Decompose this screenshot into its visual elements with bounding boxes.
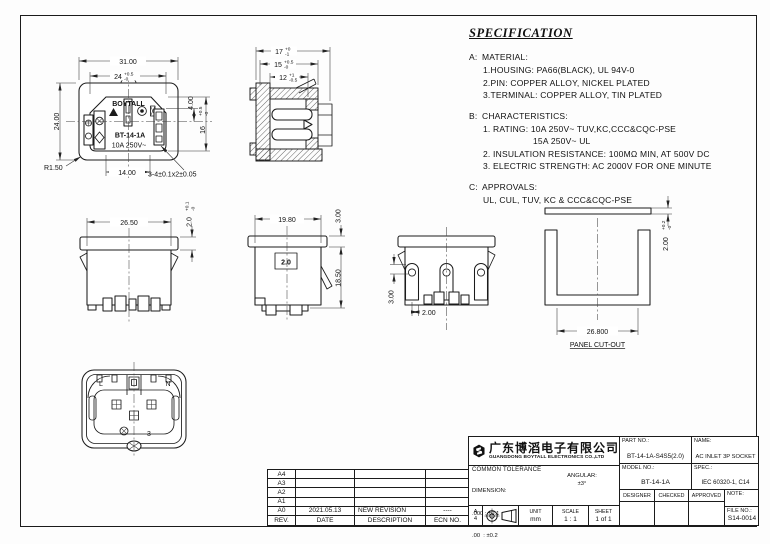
rev-cell: A2	[268, 488, 296, 497]
svg-text:18.50: 18.50	[336, 269, 343, 287]
dim-26-800: 26.800	[557, 308, 638, 336]
title-block: 广东博滔电子有限公司 GUANGDONG BOYTALL ELECTRONICS…	[468, 436, 759, 526]
tolerance-row: .00 : ±0.2	[472, 533, 552, 541]
rev-ecn: ----	[426, 507, 469, 516]
rev-cell	[355, 488, 426, 497]
svg-text:+0.1: +0.1	[185, 201, 191, 211]
angular-label: ANGULAR:	[552, 473, 612, 481]
paper-size: A 4	[469, 506, 483, 525]
terminal-block	[318, 104, 332, 146]
section-center-pin	[304, 120, 312, 129]
file-no-cell: FILE NO.: S14-0014	[725, 507, 759, 525]
rear-face-view: L N 3	[82, 362, 186, 458]
rev-cell	[355, 479, 426, 488]
rev-header: ECN NO.	[426, 516, 469, 525]
note-cell: NOTE:	[725, 490, 759, 507]
unit-value: mm	[530, 516, 541, 523]
dimension-label: DIMENSION:	[472, 488, 552, 496]
rev-cell	[426, 498, 469, 507]
third-angle-projection-icon	[484, 507, 518, 525]
side-view: 2.0 19.80 3.00 18.50	[248, 209, 345, 322]
svg-text:24.00: 24.00	[54, 113, 61, 131]
svg-text:2.00: 2.00	[422, 310, 436, 317]
svg-text:31.00: 31.00	[119, 59, 137, 66]
svg-text:4.00: 4.00	[188, 96, 195, 110]
scale-value: 1 : 1	[564, 516, 577, 523]
svg-text:3-4±0.1x2±0.05: 3-4±0.1x2±0.05	[148, 172, 197, 179]
svg-text:17: 17	[275, 49, 283, 56]
top-view: 26.50 2.0 +0.1 -0	[80, 201, 197, 322]
rev-cell	[426, 479, 469, 488]
svg-text:24: 24	[114, 74, 122, 81]
section-heading: CHARACTERISTICS:	[482, 111, 568, 121]
rev-cell	[296, 488, 355, 497]
drawing-sheet: BOYTALL BT-14-1A 10A 250V~ 31.00 24 +0.5…	[0, 0, 770, 544]
rev-cell: A1	[268, 498, 296, 507]
section-pin	[272, 109, 312, 120]
latch-wing	[171, 253, 178, 271]
thickness-marking: 2.0	[281, 260, 291, 267]
rev-cell	[296, 470, 355, 479]
rev-cell	[426, 488, 469, 497]
svg-text:3.00: 3.00	[336, 209, 343, 223]
svg-text:14.00: 14.00	[118, 170, 136, 177]
spec-line: 15A 250V~ UL	[469, 135, 753, 148]
paper-size-number: 4	[474, 516, 477, 523]
spec-line: 1. RATING: 10A 250V~ TUV,KC,CCC&CQC-PSE	[469, 123, 753, 136]
designer-header: DESIGNER	[620, 490, 655, 502]
panel-cutout-view: 2.00 +0.2 -0 26.800 PANEL CUT-OUT	[545, 196, 673, 349]
model-no-cell: MODEL NO.: BT-14-1A	[620, 464, 692, 490]
part-no-value: BT-14-1A-S4S5(2.0)	[620, 453, 691, 460]
section-right-wall	[306, 99, 318, 110]
company-header: 广东博滔电子有限公司 GUANGDONG BOYTALL ELECTRONICS…	[469, 437, 619, 465]
svg-text:2.00: 2.00	[663, 237, 670, 251]
scale-cell: SCALE 1 : 1	[553, 506, 589, 525]
name-cell: NAME: AC INLET 3P SOCKET	[692, 437, 759, 464]
brand-marking: BOYTALL	[112, 101, 145, 108]
note-label: NOTE:	[727, 491, 744, 497]
svg-text:26.800: 26.800	[587, 329, 609, 336]
company-name-cn: 广东博滔电子有限公司	[489, 442, 619, 455]
line-marking: L	[99, 381, 103, 388]
spec-section-material: A:MATERIAL: 1.HOUSING: PA66(BLACK), UL 9…	[469, 52, 753, 102]
section-label: B:	[469, 111, 482, 121]
part-no-cell: PART NO.: BT-14-1A-S4S5(2.0)	[620, 437, 692, 464]
file-no-label: FILE NO.:	[727, 508, 752, 514]
svg-text:19.80: 19.80	[278, 217, 296, 224]
section-tab	[250, 88, 256, 100]
tolerance-block: COMMON TOLERANCE DIMENSION: .000 : ±0.1 …	[469, 465, 619, 505]
body-step	[255, 298, 265, 305]
svg-text:15: 15	[274, 62, 282, 69]
section-heading: APPROVALS:	[482, 182, 537, 192]
unit-label: UNIT	[529, 509, 541, 515]
spec-title: SPECIFICATION	[469, 26, 753, 41]
svg-text:+0.2: +0.2	[661, 220, 667, 230]
neutral-marking: N	[165, 381, 170, 388]
body-outline	[255, 247, 321, 305]
rev-cell: A3	[268, 479, 296, 488]
rev-cell: A0	[268, 507, 296, 516]
spec-value: IEC 60320-1, C14	[692, 480, 759, 486]
section-bottom-wall	[256, 149, 322, 161]
rev-cell	[426, 470, 469, 479]
model-marking: BT-14-1A	[115, 133, 145, 140]
terminal-3-marking: 3	[147, 431, 151, 438]
checked-header: CHECKED	[655, 490, 689, 502]
rev-cell	[296, 498, 355, 507]
revision-table: A4 A3 A2 A1 A0 2021.05.13 NEW REVISION -…	[267, 469, 470, 526]
latch-wing	[398, 251, 405, 270]
svg-text:2.0: 2.0	[187, 217, 194, 227]
sheet-value: 1 of 1	[595, 516, 611, 523]
dim-2-0-tol: 2.0 +0.1 -0	[180, 201, 197, 262]
rev-cell	[355, 498, 426, 507]
rev-cell	[355, 470, 426, 479]
dim-3-00: 3.00	[329, 209, 345, 247]
svg-text:-0: -0	[124, 77, 129, 83]
spec-line: 3.TERMINAL: COPPER ALLOY, TIN PLATED	[469, 89, 753, 102]
svg-text:-0: -0	[667, 225, 673, 230]
svg-text:-0: -0	[204, 111, 210, 116]
spec-section-approvals: C:APPROVALS: UL, CUL, TUV, KC & CCC&CQC-…	[469, 182, 753, 207]
model-no-label: MODEL NO.:	[622, 465, 655, 471]
svg-text:26.50: 26.50	[120, 220, 138, 227]
section-tab	[250, 143, 256, 155]
terminal-tab	[290, 305, 302, 315]
latch-wing	[488, 251, 495, 270]
radius-leader: R1.50	[44, 157, 81, 173]
svg-text:-0.5: -0.5	[289, 78, 298, 84]
title-block-bottom-row: A 4 UNIT mm SCALE 1 : 1	[469, 505, 619, 525]
rev-date: 2021.05.13	[296, 507, 355, 516]
part-no-label: PART NO.:	[622, 438, 649, 444]
unit-cell: UNIT mm	[519, 506, 553, 525]
latch-hook	[321, 266, 332, 289]
approved-signature-box	[689, 502, 725, 525]
pin-terminal	[154, 109, 164, 145]
company-logo	[472, 440, 486, 462]
rev-description: NEW REVISION	[355, 507, 426, 516]
terminal-block-steps	[318, 115, 332, 135]
file-no-value: S14-0014	[725, 515, 759, 522]
svg-text:12: 12	[279, 75, 287, 82]
company-name-en: GUANGDONG BOYTALL ELECTRONICS CO.,LTD	[489, 455, 619, 460]
section-label: C:	[469, 182, 482, 192]
spec-label: SPEC.:	[694, 465, 712, 471]
svg-text:3.00: 3.00	[389, 290, 396, 304]
projection-symbol-cell	[483, 506, 519, 525]
spec-line: 1.HOUSING: PA66(BLACK), UL 94V-0	[469, 64, 753, 77]
panel-cutout-label: PANEL CUT-OUT	[570, 342, 626, 349]
spec-cell: SPEC.: IEC 60320-1, C14	[692, 464, 759, 490]
section-label: A:	[469, 52, 482, 62]
spec-line: 3. ELECTRIC STRENGTH: AC 2000V FOR ONE M…	[469, 160, 753, 173]
svg-text:-1: -1	[285, 52, 290, 58]
scale-label: SCALE	[562, 509, 579, 515]
checked-signature-box	[655, 502, 689, 525]
designer-signature-box	[620, 502, 655, 525]
spec-section-characteristics: B:CHARACTERISTICS: 1. RATING: 10A 250V~ …	[469, 111, 753, 173]
terminal-tab	[266, 305, 276, 315]
rev-cell: A4	[268, 470, 296, 479]
terminal-view: 3.00 2.00	[389, 227, 496, 330]
fuse-holder	[84, 111, 105, 149]
name-value: AC INLET 3P SOCKET	[692, 454, 759, 460]
rev-header: DESCRIPTION	[355, 516, 426, 525]
section-heading: MATERIAL:	[482, 52, 528, 62]
svg-text:16: 16	[200, 126, 207, 134]
section-top-wall	[270, 88, 318, 99]
approved-header: APPROVED	[689, 490, 725, 502]
rev-header: DATE	[296, 516, 355, 525]
front-view: BOYTALL BT-14-1A 10A 250V~ 31.00 24 +0.5…	[44, 57, 212, 179]
rev-header: REV.	[268, 516, 296, 525]
spec-line: 2.PIN: COPPER ALLOY, NICKEL PLATED	[469, 77, 753, 90]
svg-text:-0: -0	[191, 206, 197, 211]
section-view: 17 +0 -1 15 +0.5 -0 12 +1 -0.5	[250, 47, 332, 162]
rev-cell	[296, 479, 355, 488]
spec-line: 2. INSULATION RESISTANCE: 100MΩ MIN, AT …	[469, 148, 753, 161]
spec-line: UL, CUL, TUV, KC & CCC&CQC-PSE	[469, 194, 753, 207]
svg-text:-0: -0	[284, 65, 289, 71]
model-no-value: BT-14-1A	[620, 479, 691, 486]
name-label: NAME:	[694, 438, 712, 444]
latch-wing	[80, 253, 87, 271]
section-pin	[272, 129, 312, 140]
rating-marking: 10A 250V~	[112, 143, 146, 150]
svg-text:+0.5: +0.5	[198, 106, 204, 116]
flange	[248, 236, 327, 247]
specification: SPECIFICATION A:MATERIAL: 1.HOUSING: PA6…	[469, 26, 753, 215]
sheet-cell: SHEET 1 of 1	[589, 506, 618, 525]
sheet-label: SHEET	[595, 509, 612, 515]
svg-text:R1.50: R1.50	[44, 165, 63, 172]
title-block-info: PART NO.: BT-14-1A-S4S5(2.0) NAME: AC IN…	[619, 437, 758, 525]
section-left-wall	[256, 83, 270, 160]
angular-value: ±3°	[552, 481, 612, 489]
